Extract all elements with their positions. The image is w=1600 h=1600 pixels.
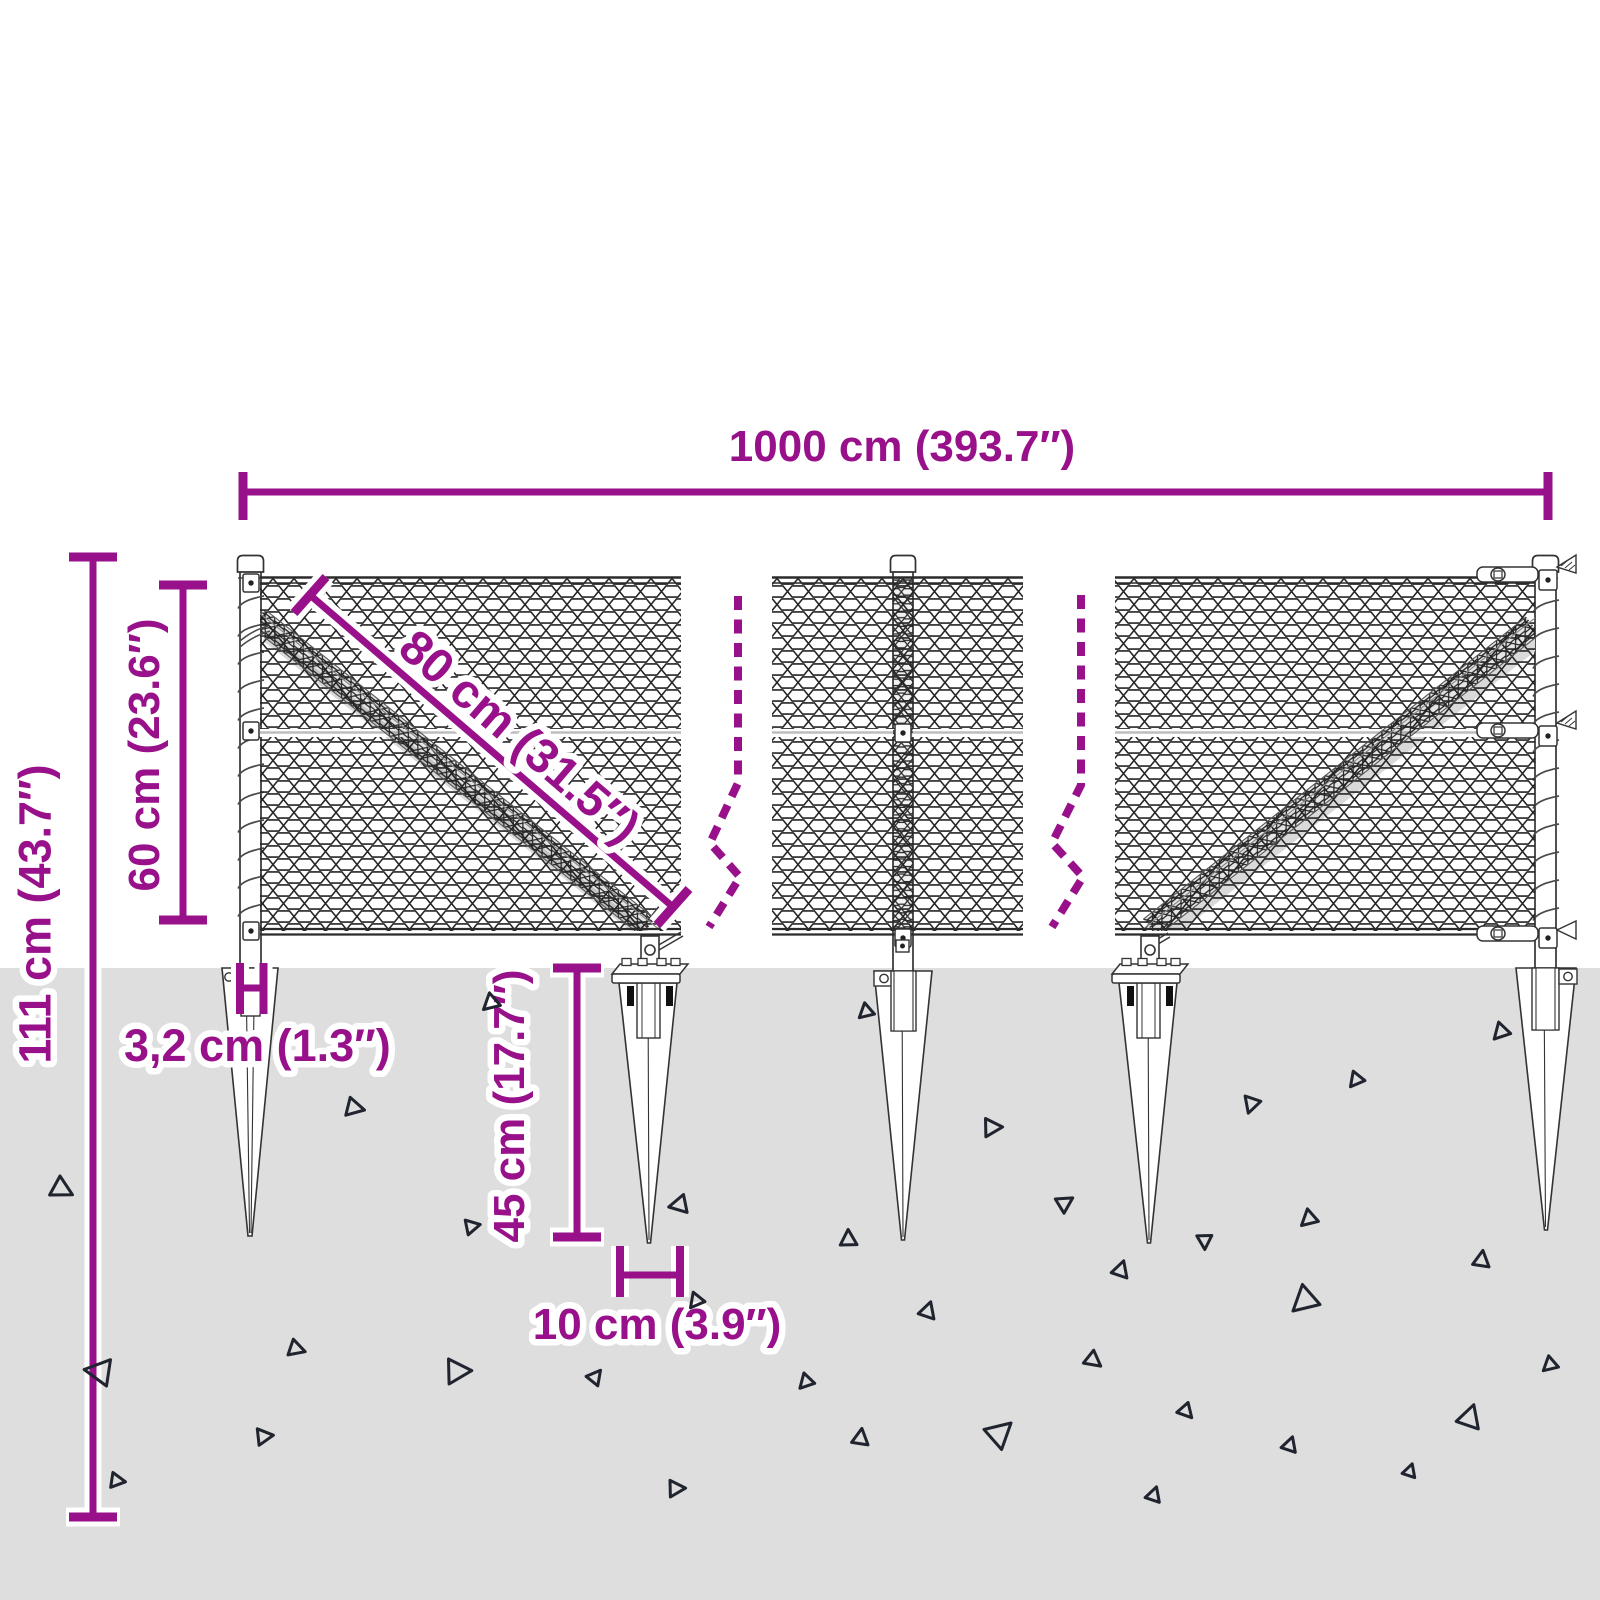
svg-text:3,2 cm (1.3″): 3,2 cm (1.3″) (124, 1020, 391, 1071)
svg-text:111 cm (43.7″): 111 cm (43.7″) (10, 764, 61, 1063)
svg-text:1000 cm (393.7″): 1000 cm (393.7″) (729, 422, 1075, 471)
svg-text:60 cm (23.6″): 60 cm (23.6″) (120, 618, 169, 891)
svg-text:10 cm (3.9″): 10 cm (3.9″) (533, 1300, 782, 1349)
svg-text:45 cm (17.7″): 45 cm (17.7″) (485, 969, 534, 1242)
